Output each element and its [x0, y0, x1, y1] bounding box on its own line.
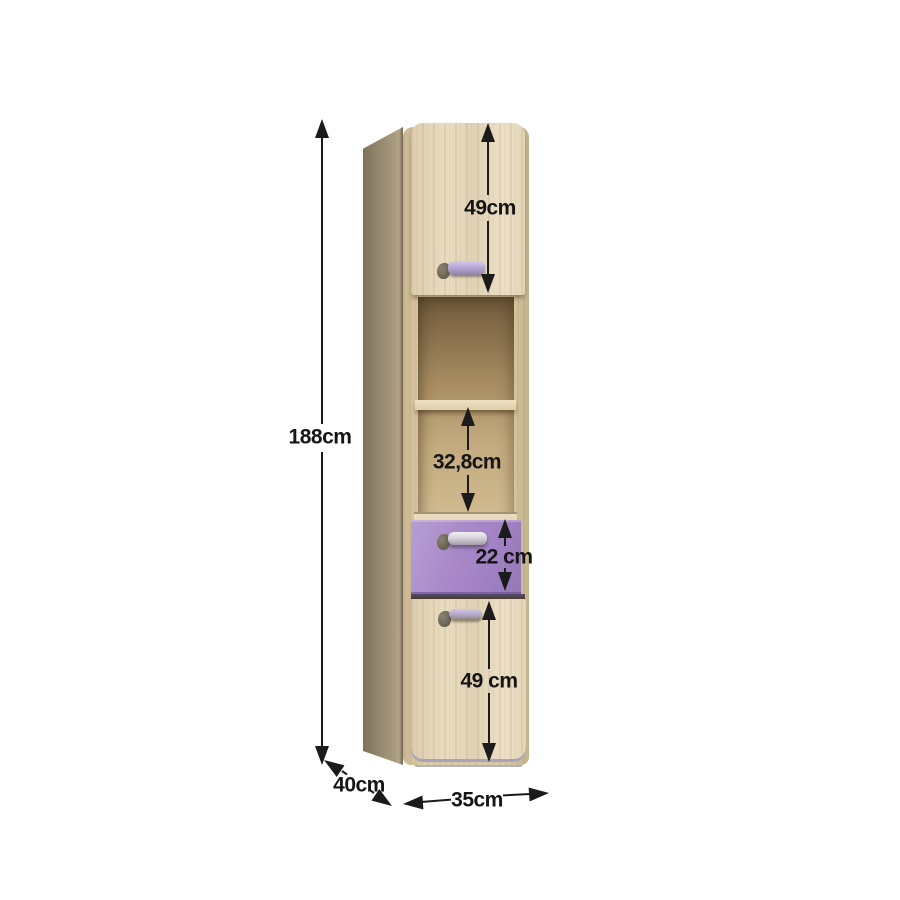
handle-bar-icon [448, 532, 487, 545]
handle-bar-icon [449, 609, 482, 619]
cabinet-side-panel [363, 127, 403, 765]
top-door-height-label: 49cm [464, 198, 516, 219]
overall-height-label: 188cm [289, 427, 352, 448]
width-label: 35cm [451, 790, 503, 811]
handle-bar-icon [448, 261, 485, 275]
open-shelf-height-label: 32,8cm [433, 452, 501, 473]
bottom-door-height-label: 49 cm [460, 671, 517, 692]
bottom-door-handle [438, 609, 484, 627]
drawer-height-label: 22 cm [475, 547, 532, 568]
middle-shelf [415, 400, 516, 410]
depth-label: 40cm [333, 775, 385, 796]
product-dimension-diagram: 188cm 49cm 32,8cm 22 cm 49 cm 40cm 35cm [0, 0, 900, 900]
top-door-handle [437, 261, 487, 279]
